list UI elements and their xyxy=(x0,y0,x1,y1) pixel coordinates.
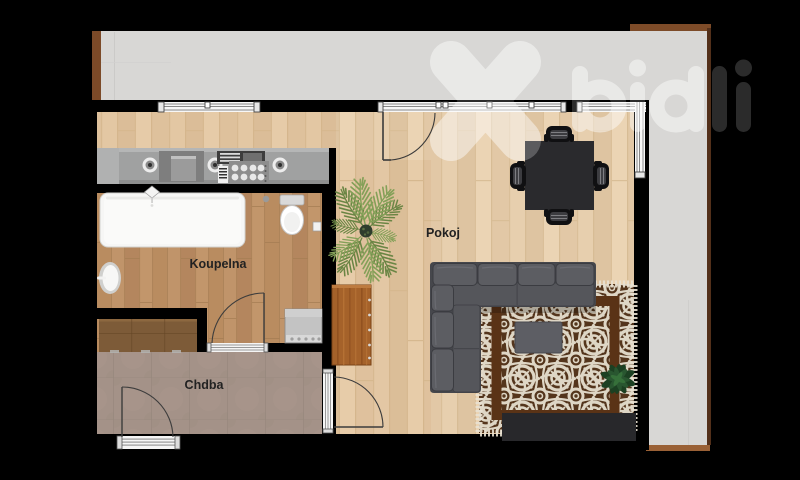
svg-text:Koupelna: Koupelna xyxy=(190,257,248,271)
svg-text:Chdba: Chdba xyxy=(185,378,225,392)
svg-text:Pokoj: Pokoj xyxy=(426,226,460,240)
